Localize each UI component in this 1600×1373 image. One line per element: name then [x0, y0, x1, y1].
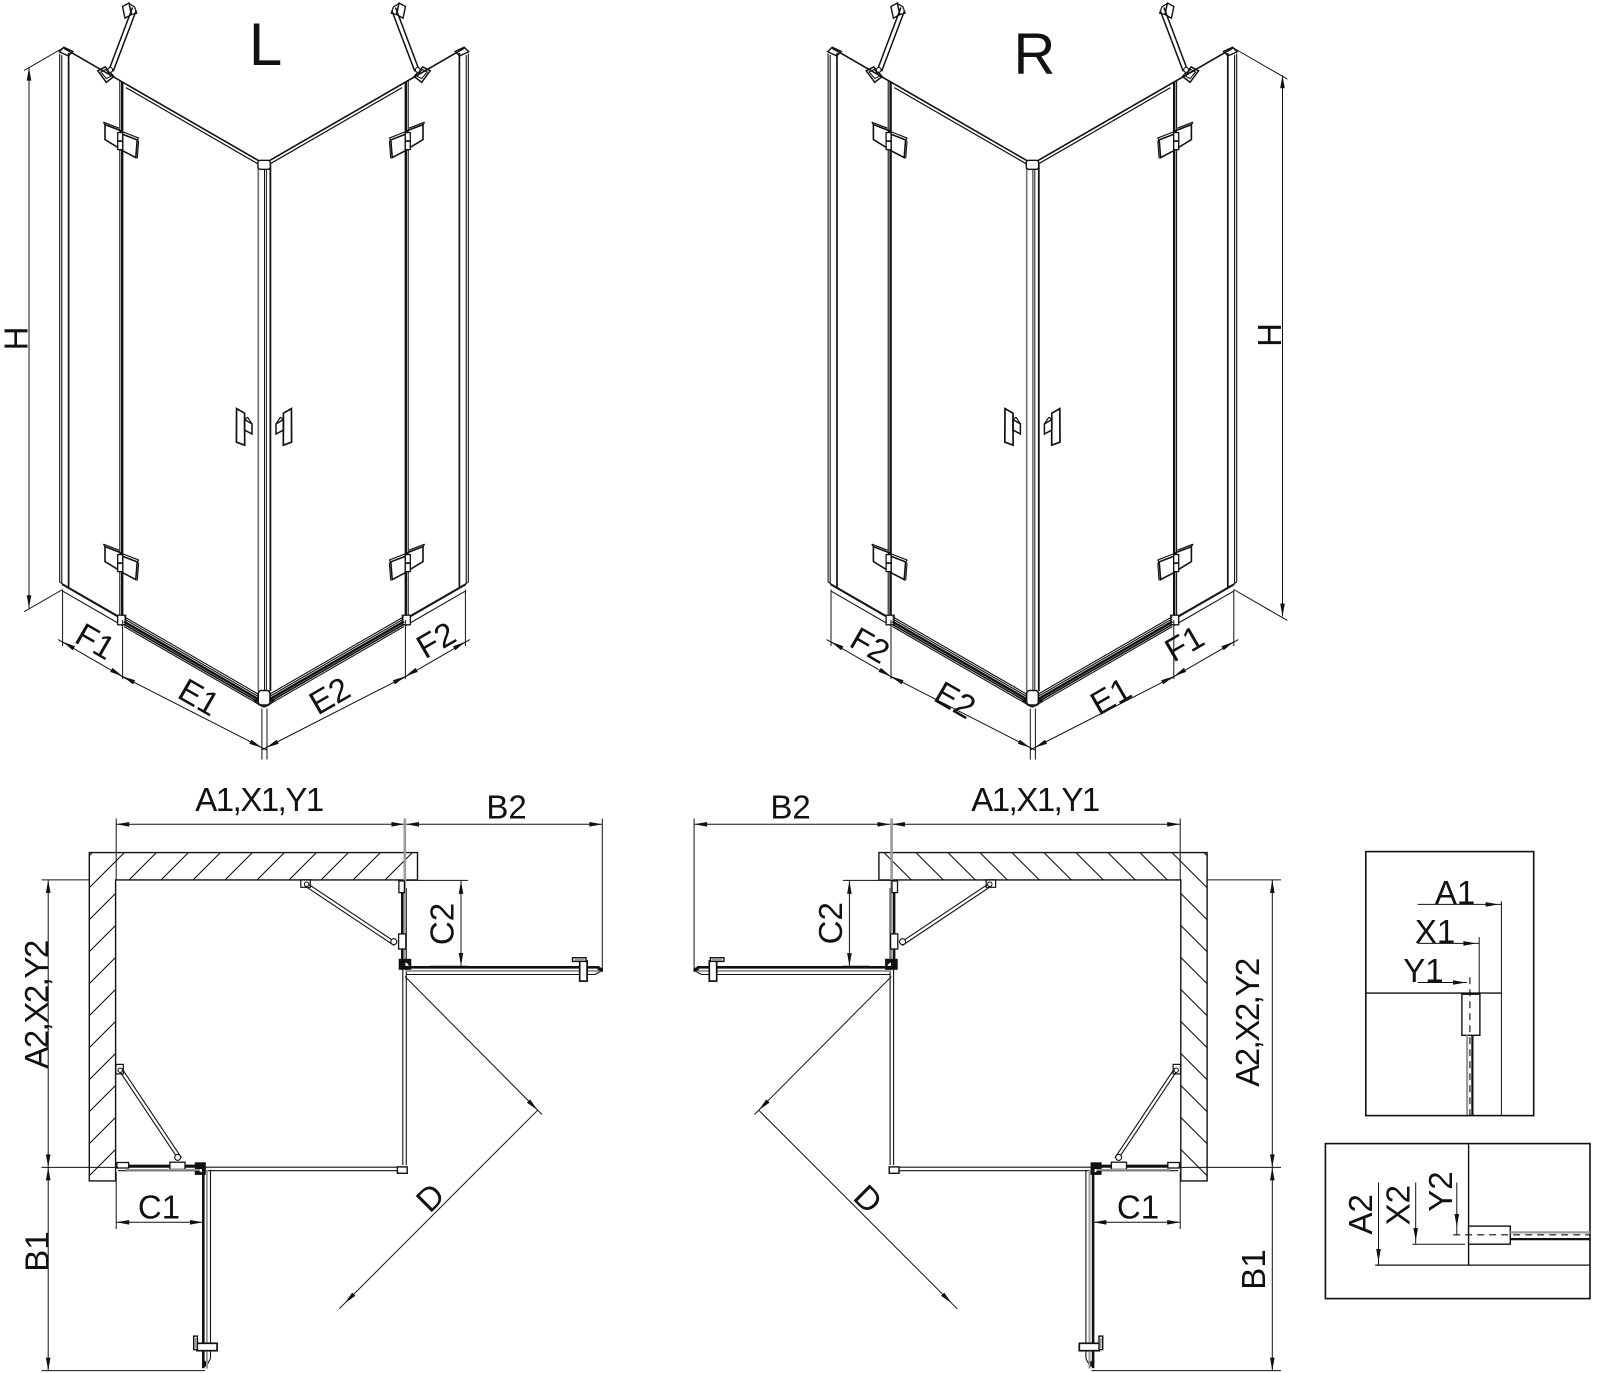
svg-text:Y2: Y2	[1422, 1171, 1459, 1211]
svg-text:A2,X2,Y2: A2,X2,Y2	[18, 941, 55, 1069]
svg-text:C1: C1	[1117, 1189, 1159, 1226]
svg-text:C1: C1	[138, 1189, 180, 1226]
svg-text:L: L	[249, 11, 282, 78]
svg-text:A1: A1	[1435, 874, 1475, 911]
svg-text:B2: B2	[770, 789, 810, 826]
svg-text:A1,X1,Y1: A1,X1,Y1	[195, 781, 323, 818]
svg-text:H: H	[1251, 323, 1288, 347]
svg-text:B2: B2	[486, 789, 526, 826]
svg-text:A1,X1,Y1: A1,X1,Y1	[971, 781, 1099, 818]
svg-text:C2: C2	[812, 902, 849, 944]
svg-text:B1: B1	[19, 1231, 56, 1271]
svg-text:Y1: Y1	[1403, 952, 1443, 989]
svg-text:A2: A2	[1342, 1194, 1379, 1234]
svg-text:C2: C2	[424, 903, 461, 945]
svg-text:H: H	[0, 327, 35, 351]
svg-text:R: R	[1014, 22, 1056, 87]
svg-text:X2: X2	[1380, 1185, 1417, 1225]
svg-text:A2,X2,Y2: A2,X2,Y2	[1229, 959, 1266, 1087]
svg-text:X1: X1	[1415, 913, 1455, 950]
svg-text:B1: B1	[1235, 1249, 1272, 1289]
